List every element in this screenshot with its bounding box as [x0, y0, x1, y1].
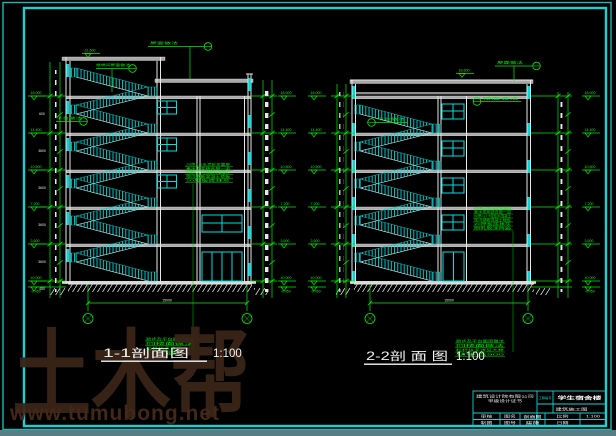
section-2-title: 2-2剖 面 图 — [366, 349, 448, 363]
titleblock-project-name: 学生宿舍楼 — [558, 395, 603, 402]
elevation-text-neg: -0.450 — [311, 290, 321, 294]
elevation-text: 14.400 — [311, 128, 322, 132]
callout-floor: 楼面做法 — [483, 96, 519, 101]
elevation-text: 7.200 — [585, 202, 594, 206]
footnote-line: 同楼面做法 — [456, 343, 504, 348]
elevation-text-neg: -0.450 — [585, 290, 595, 294]
note-line: 20厚板底抹灰 — [186, 178, 230, 183]
elevation-text: 18.000 — [31, 91, 42, 95]
total-dim-text: 15000 — [162, 299, 172, 303]
titleblock-zhitu-label: 制图 — [481, 420, 494, 425]
top-elevation-text: 21.600 — [85, 49, 96, 53]
section-2-underline — [364, 364, 452, 365]
titleblock-org-sub: 甲级设计证书 — [488, 398, 523, 403]
titleblock-tuhao-label: 图号 — [504, 420, 517, 425]
elevation-text: 3.600 — [585, 239, 594, 243]
titleblock-drawing-name: 剖面图 — [524, 414, 542, 419]
elevation-text: 7.200 — [31, 202, 40, 206]
callout-stair-roof: 楼梯间屋面做法 — [96, 62, 130, 67]
elevation-text-neg: -0.450 — [31, 290, 41, 294]
elevation-text: ±0.000 — [585, 276, 596, 280]
elevation-text: 3.600 — [281, 239, 290, 243]
section-1-scale: 1:100 — [213, 348, 242, 360]
elevation-text: 18.000 — [311, 91, 322, 95]
titleblock-org: 建筑设计院有限公司 — [476, 394, 534, 399]
watermark-site: www.tumubong.net — [9, 402, 220, 425]
section-1-underline — [101, 361, 207, 362]
dim-text: 600 — [39, 112, 45, 116]
elevation-text: 14.400 — [281, 128, 292, 132]
note-line: 刷乳胶漆两遍 — [474, 225, 511, 230]
elevation-text: 10.800 — [31, 165, 42, 169]
elevation-text: ±0.000 — [311, 276, 322, 280]
elevation-text: 14.400 — [31, 128, 42, 132]
elevation-text-neg: -0.450 — [281, 290, 291, 294]
elevation-text: 10.800 — [281, 165, 292, 169]
elevation-text: 3.600 — [31, 239, 40, 243]
titleblock-scale-value: 1:100 — [586, 415, 600, 419]
titleblock-tuming-label: 图名 — [504, 414, 516, 419]
drawing-canvas: 600 3600 3600 3600 3600 450 屋面做法 楼梯间屋面做法… — [0, 0, 616, 436]
titleblock-bili-label: 比例 — [557, 414, 570, 419]
titleblock-drawing-no: 建施 — [526, 420, 542, 425]
elevation-text: 10.800 — [585, 165, 596, 169]
titleblock-project-no-label: 工程编号 — [539, 396, 552, 400]
elevation-text: ±0.000 — [31, 276, 42, 280]
callout-landing: 平台做法 — [56, 115, 82, 120]
elevation-text: 7.200 — [311, 202, 320, 206]
elevation-text: 3.600 — [311, 239, 320, 243]
footnote-line: 踏步及平台面层做法 — [456, 338, 504, 343]
watermark: 土木帮 www.tumubong.net — [9, 323, 250, 429]
dim-text: 3600 — [38, 149, 46, 153]
dim-text: 3600 — [38, 186, 46, 190]
elevation-text: 7.200 — [281, 202, 290, 206]
titleblock-riqi-label: 日期 — [557, 420, 570, 425]
elevation-text: 18.000 — [281, 91, 292, 95]
elevation-text: 10.800 — [311, 165, 322, 169]
callout-roof: 屋面做法 — [497, 60, 523, 65]
elevation-text: 14.400 — [585, 128, 596, 132]
dim-text: 3600 — [38, 260, 46, 264]
top-elevation-text: 18.600 — [459, 69, 470, 73]
section-2-scale: 1:100 — [456, 351, 485, 363]
elevation-text: 18.000 — [585, 91, 596, 95]
bottom-edge-strip — [0, 430, 616, 436]
cad-sheet: 600 3600 3600 3600 3600 450 屋面做法 楼梯间屋面做法… — [0, 0, 616, 436]
callout-roof: 屋面做法 — [150, 40, 178, 45]
dim-text: 3600 — [38, 223, 46, 227]
callout-landing: 平台做法 — [377, 116, 405, 121]
titleblock-stage: 建筑施工图 — [556, 407, 589, 412]
titleblock-shenhe-label: 审核 — [481, 414, 494, 419]
total-dim-text: 15000 — [444, 299, 454, 303]
elevation-text: ±0.000 — [281, 276, 292, 280]
section-1-title: 1-1剖面图 — [103, 346, 189, 360]
